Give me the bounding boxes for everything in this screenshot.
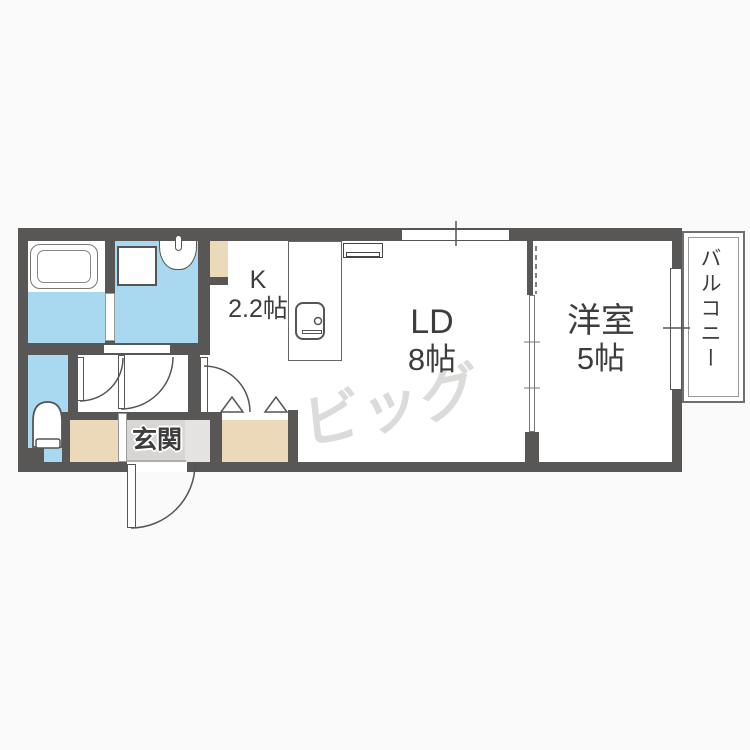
western-room-label-group: 洋室 5帖	[545, 302, 657, 377]
ld-label-group: LD 8帖	[382, 303, 482, 378]
kitchen-label: K	[208, 266, 308, 295]
kitchen-size: 2.2帖	[208, 295, 308, 324]
toilet-seat	[36, 439, 60, 448]
kitchen-label-group: K 2.2帖	[208, 266, 308, 324]
folding-door-icon	[221, 397, 243, 412]
balcony-label: バルコニー	[694, 247, 724, 397]
entrance-label: 玄関	[126, 426, 188, 455]
ld-label: LD	[382, 303, 482, 342]
toilet-door-swing-icon	[80, 358, 123, 401]
western-room-label: 洋室	[545, 302, 657, 341]
washroom-door-swing-icon	[121, 357, 173, 409]
ld-size: 8帖	[382, 342, 482, 378]
floorplan-page: ビッグ	[0, 0, 750, 750]
western-room-size: 5帖	[545, 341, 657, 377]
entrance-door-swing-icon	[131, 464, 195, 528]
stove-knob	[315, 318, 322, 325]
folding-door-icon	[265, 397, 287, 412]
